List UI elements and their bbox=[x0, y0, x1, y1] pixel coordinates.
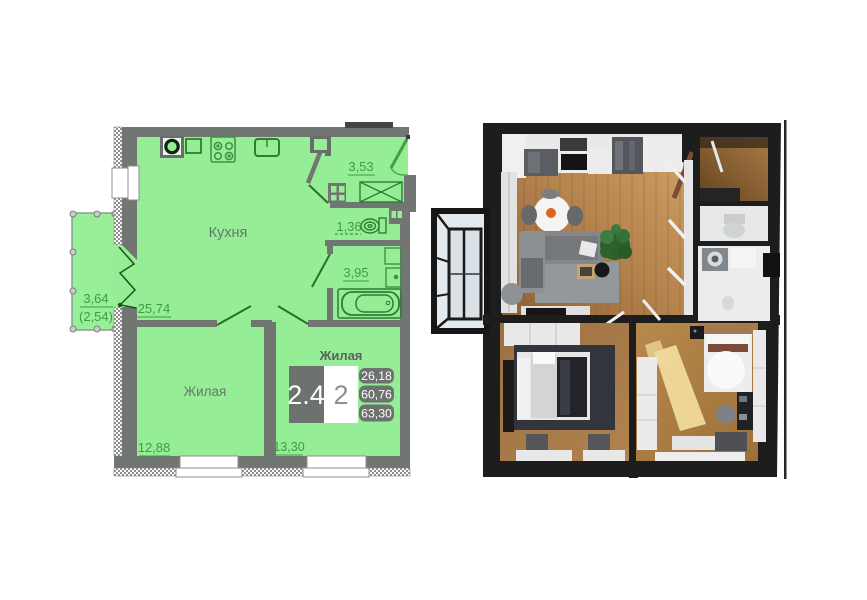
svg-text:25,74: 25,74 bbox=[138, 301, 171, 316]
svg-text:3,64: 3,64 bbox=[83, 291, 108, 306]
svg-text:(2,54): (2,54) bbox=[79, 309, 113, 324]
svg-text:60,76: 60,76 bbox=[361, 388, 392, 402]
svg-text:12,88: 12,88 bbox=[138, 440, 171, 455]
svg-text:Кухня: Кухня bbox=[209, 225, 248, 241]
svg-text:13,30: 13,30 bbox=[273, 440, 304, 454]
svg-text:2.4: 2.4 bbox=[287, 380, 325, 410]
svg-text:26,18: 26,18 bbox=[361, 369, 392, 383]
svg-text:Жилая: Жилая bbox=[184, 384, 227, 399]
svg-text:Жилая: Жилая bbox=[319, 348, 363, 363]
svg-text:2: 2 bbox=[333, 380, 348, 410]
svg-text:3,53: 3,53 bbox=[348, 159, 373, 174]
svg-text:3,95: 3,95 bbox=[343, 265, 368, 280]
svg-text:63,30: 63,30 bbox=[361, 407, 392, 421]
svg-text:1,36: 1,36 bbox=[336, 219, 361, 234]
